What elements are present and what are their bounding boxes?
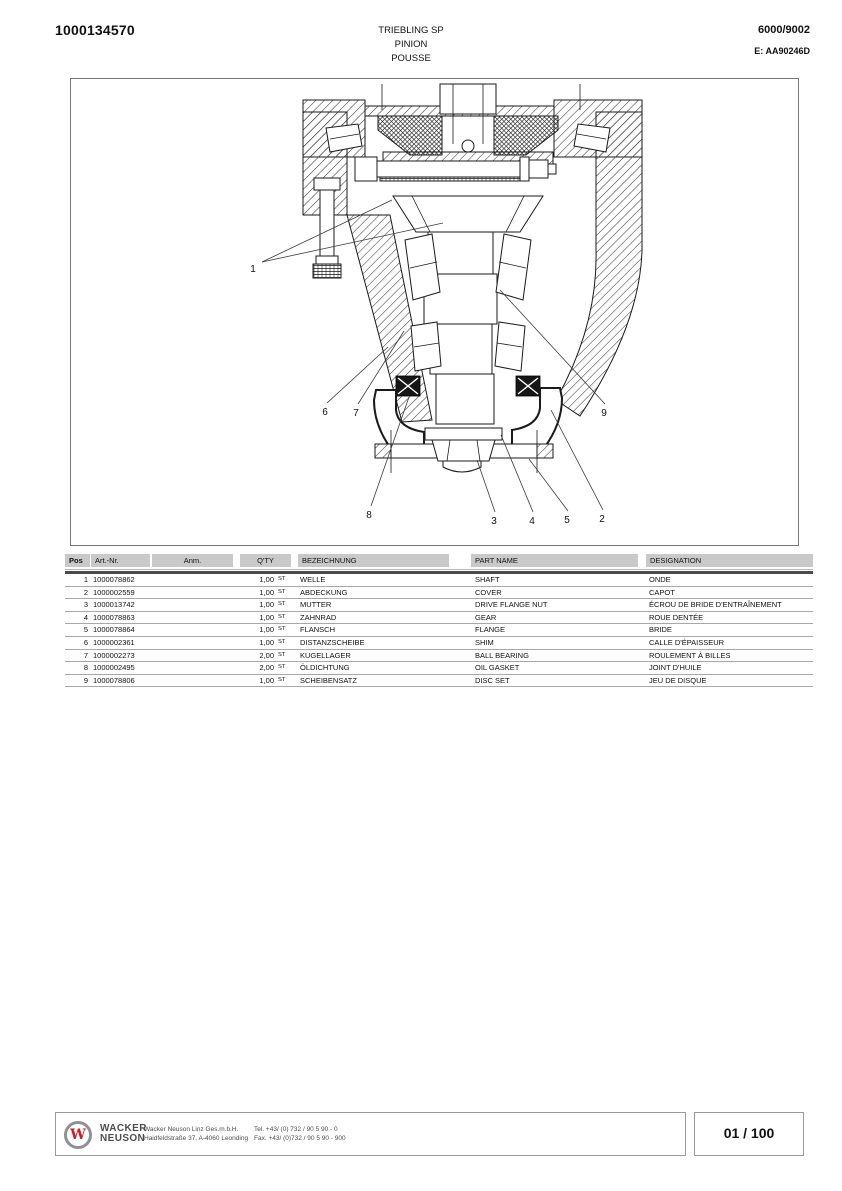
cell-pos: 2 [65,587,88,599]
stud-collar [316,256,338,264]
cell-part: OIL GASKET [475,662,519,674]
cell-qty: 1,00 [236,587,274,599]
cell-des: ÉCROU DE BRIDE D'ENTRAÎNEMENT [649,599,782,611]
callout-4: 4 [529,516,535,527]
cell-unit: ST [278,650,285,662]
cell-bez: WELLE [300,574,325,586]
title-german: TRIEBLING SP [261,24,561,38]
cell-unit: ST [278,599,285,611]
cell-unit: ST [278,662,285,674]
washer-disc [425,428,502,440]
column-header-bezeichnung: BEZEICHNUNG [298,554,449,567]
cell-qty: 1,00 [236,612,274,624]
callout-9: 9 [601,408,607,419]
bolt-left-block [355,157,377,181]
callout-5: 5 [564,515,570,526]
cell-art: 1000078863 [93,612,135,624]
shaft-top [440,84,496,114]
column-header-qty: Q'TY [240,554,291,567]
column-header-art-nr: Art.-Nr. [91,554,150,567]
shaft-section-1 [428,232,493,274]
horizontal-bolt [355,157,556,181]
cell-pos: 1 [65,574,88,586]
table-row: 610000023611,00STDISTANZSCHEIBESHIMCALLE… [65,637,813,650]
hex-nut [432,440,495,461]
stud-head [314,178,340,190]
bearing-upper-right [496,234,531,300]
column-header-part-name: PART NAME [471,554,638,567]
shaft-ball-end [462,140,474,152]
cell-part: BALL BEARING [475,650,529,662]
crown-gear-left [378,116,442,155]
table-row: 910000788061,00STSCHEIBENSATZDISC SETJEU… [65,675,813,688]
cell-qty: 2,00 [236,662,274,674]
logo-letter: W [70,1128,86,1142]
cell-unit: ST [278,675,285,687]
cell-des: BRIDE [649,624,672,636]
cell-des: CAPOT [649,587,675,599]
cell-qty: 1,00 [236,624,274,636]
cell-qty: 1,00 [236,637,274,649]
bevel-gear [393,196,543,232]
title-french: POUSSE [261,52,561,66]
brand-name: WACKER NEUSON [100,1124,147,1143]
fax-number: Fax. +43/ (0)732 / 90 5 90 - 900 [254,1135,346,1144]
cell-art: 1000013742 [93,599,135,611]
cell-des: ROULEMENT À BILLES [649,650,731,662]
cell-pos: 4 [65,612,88,624]
cell-bez: KUGELLAGER [300,650,351,662]
cell-unit: ST [278,612,285,624]
cell-qty: 1,00 [236,599,274,611]
wacker-neuson-logo-icon: W [64,1121,92,1149]
cell-pos: 5 [65,624,88,636]
company-address: Wacker Neuson Linz Ges.m.b.H. Haidfeldst… [144,1126,248,1143]
cell-art: 1000002559 [93,587,135,599]
cell-unit: ST [278,624,285,636]
callout-3: 3 [491,516,497,527]
cell-unit: ST [278,574,285,586]
cell-bez: ABDECKUNG [300,587,348,599]
bolt-nut [529,160,548,178]
brand-line-2: NEUSON [100,1134,147,1144]
table-row: 710000022732,00STKUGELLAGERBALL BEARINGR… [65,650,813,663]
cell-bez: FLANSCH [300,624,335,636]
cell-art: 1000002273 [93,650,135,662]
table-row: 410000788631,00STZAHNRADGEARROUE DENTÉE [65,612,813,625]
cell-qty: 2,00 [236,650,274,662]
flange-cap-right [537,444,553,458]
housing-right-cone [556,112,642,416]
cell-part: FLANGE [475,624,505,636]
model-block: 6000/9002 E: AA90246D [754,24,810,56]
stud-thread [313,264,341,278]
cell-des: ONDE [649,574,671,586]
bolt-tip [548,164,556,174]
parts-catalog-page: 1000134570 TRIEBLING SP PINION POUSSE 60… [0,0,842,1191]
cell-part: SHIM [475,637,494,649]
callout-1: 1 [250,264,256,275]
cell-bez: ÖLDICHTUNG [300,662,350,674]
bolt-thread [380,177,520,181]
model-number: 6000/9002 [754,24,810,36]
bolt-washer [520,157,529,181]
stud-shaft [320,190,334,256]
bolt-shaft [377,161,520,177]
cell-part: GEAR [475,612,496,624]
cell-art: 1000078864 [93,624,135,636]
title-block: TRIEBLING SP PINION POUSSE [261,24,561,66]
cell-pos: 7 [65,650,88,662]
page-indicator: 01 / 100 [694,1112,804,1156]
parts-table-body: 110000788621,00STWELLESHAFTONDE210000025… [0,574,842,687]
callout-8: 8 [366,510,372,521]
cell-unit: ST [278,587,285,599]
phone-number: Tel. +43/ (0) 732 / 90 5 90 - 0 [254,1126,346,1135]
cell-pos: 9 [65,675,88,687]
cell-part: COVER [475,587,502,599]
company-street: Haidfeldstraße 37, A-4060 Leonding [144,1135,248,1144]
cell-bez: MUTTER [300,599,331,611]
table-row: 210000025591,00STABDECKUNGCOVERCAPOT [65,587,813,600]
cell-des: JOINT D'HUILE [649,662,702,674]
cell-bez: DISTANZSCHEIBE [300,637,364,649]
table-row: 510000788641,00STFLANSCHFLANGEBRIDE [65,624,813,637]
cell-des: CALLE D'ÉPAISSEUR [649,637,724,649]
callout-2: 2 [599,514,605,525]
column-header-anm: Anm. [152,554,233,567]
cell-art: 1000078862 [93,574,135,586]
document-number: 1000134570 [55,22,135,38]
table-row: 310000137421,00STMUTTERDRIVE FLANGE NUTÉ… [65,599,813,612]
cell-part: SHAFT [475,574,500,586]
company-name: Wacker Neuson Linz Ges.m.b.H. [144,1126,248,1135]
cell-bez: ZAHNRAD [300,612,336,624]
cell-part: DISC SET [475,675,510,687]
title-english: PINION [261,38,561,52]
company-contact: Tel. +43/ (0) 732 / 90 5 90 - 0 Fax. +43… [254,1126,346,1143]
cell-pos: 8 [65,662,88,674]
table-row: 810000024952,00STÖLDICHTUNGOIL GASKETJOI… [65,662,813,675]
shaft-section-4 [436,374,494,424]
footer-company-box: W WACKER NEUSON Wacker Neuson Linz Ges.m… [55,1112,686,1156]
cell-des: JEU DE DISQUE [649,675,707,687]
shaft-end-cap [443,461,481,472]
cell-art: 1000078806 [93,675,135,687]
cell-pos: 6 [65,637,88,649]
callout-6: 6 [322,407,328,418]
cell-qty: 1,00 [236,574,274,586]
crown-gear-right [494,116,558,155]
edition-code: E: AA90246D [754,46,810,56]
callout-7: 7 [353,408,359,419]
column-header-designation: DESIGNATION [646,554,813,567]
cell-des: ROUE DENTÉE [649,612,703,624]
pinion-cross-section-svg: 1 2 3 4 5 6 7 8 9 [71,79,798,545]
cell-unit: ST [278,637,285,649]
cell-art: 1000002361 [93,637,135,649]
cell-part: DRIVE FLANGE NUT [475,599,548,611]
cell-qty: 1,00 [236,675,274,687]
cell-art: 1000002495 [93,662,135,674]
cell-pos: 3 [65,599,88,611]
cell-bez: SCHEIBENSATZ [300,675,357,687]
assembly-diagram: 1 2 3 4 5 6 7 8 9 [70,78,799,546]
column-header-pos: Pos [65,554,90,567]
table-row: 110000788621,00STWELLESHAFTONDE [65,574,813,587]
